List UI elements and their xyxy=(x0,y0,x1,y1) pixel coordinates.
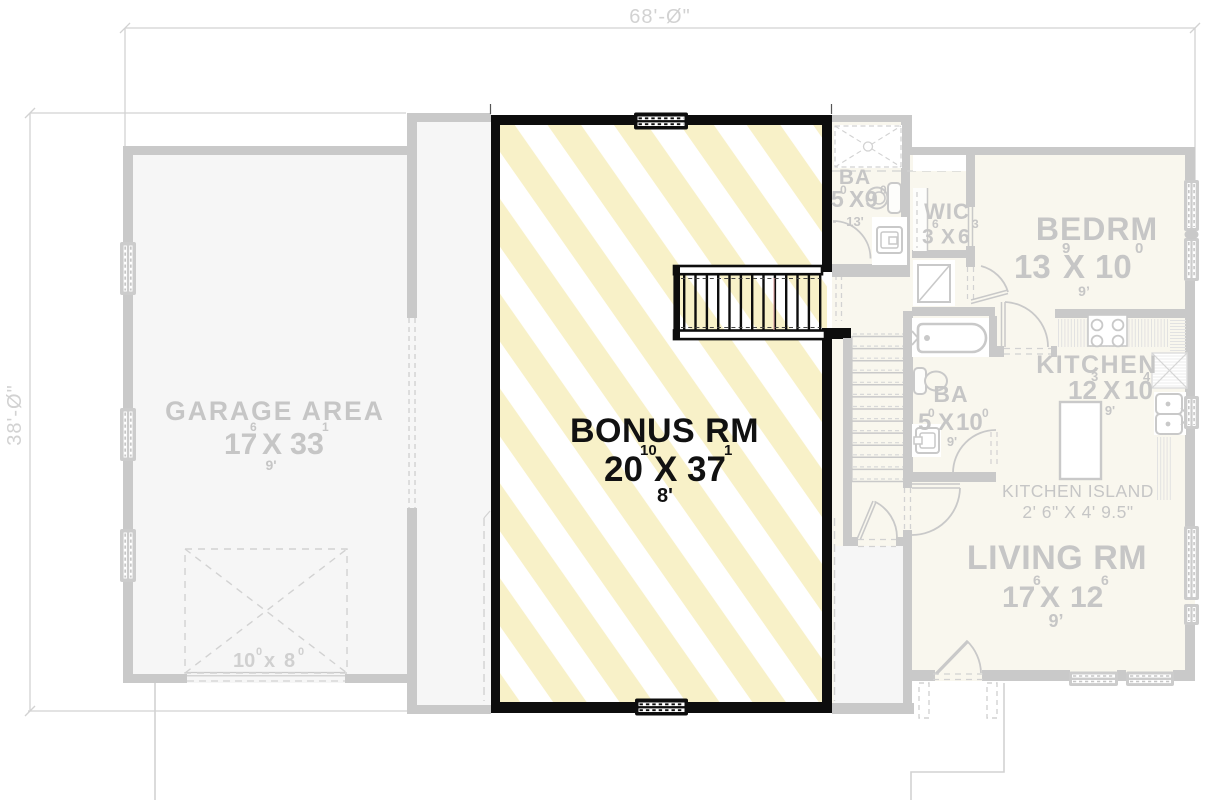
svg-text:KITCHEN ISLAND: KITCHEN ISLAND xyxy=(1002,481,1154,501)
svg-text:10: 10 xyxy=(233,650,255,672)
svg-text:WIC: WIC xyxy=(924,199,970,224)
svg-text:0: 0 xyxy=(840,183,847,197)
svg-text:X: X xyxy=(1063,248,1085,285)
svg-text:17: 17 xyxy=(1002,581,1035,614)
svg-text:LIVING RM: LIVING RM xyxy=(967,539,1147,577)
svg-text:68'-Ø": 68'-Ø" xyxy=(629,6,690,28)
svg-text:10: 10 xyxy=(1095,248,1132,285)
svg-text:9’: 9’ xyxy=(1048,611,1063,631)
svg-text:X: X xyxy=(1103,375,1121,405)
svg-text:8': 8' xyxy=(657,485,673,507)
svg-text:BA: BA xyxy=(933,381,968,407)
svg-text:X: X xyxy=(938,409,954,436)
svg-text:x: x xyxy=(264,650,275,672)
svg-text:3: 3 xyxy=(972,217,979,231)
svg-text:3: 3 xyxy=(1091,369,1098,384)
svg-text:9': 9' xyxy=(1105,403,1115,418)
svg-text:0: 0 xyxy=(928,406,935,420)
svg-text:6: 6 xyxy=(932,217,939,231)
svg-text:X: X xyxy=(1040,581,1060,614)
svg-text:20: 20 xyxy=(604,450,643,489)
svg-text:0: 0 xyxy=(1135,240,1143,257)
svg-text:1: 1 xyxy=(322,420,329,434)
svg-text:0: 0 xyxy=(880,183,887,197)
svg-text:8: 8 xyxy=(284,650,295,672)
svg-text:37: 37 xyxy=(687,450,726,489)
svg-text:33: 33 xyxy=(290,427,324,461)
svg-text:13: 13 xyxy=(1014,248,1051,285)
svg-text:X: X xyxy=(941,226,955,249)
svg-text:4: 4 xyxy=(1143,369,1151,384)
svg-text:9: 9 xyxy=(865,186,878,212)
svg-text:6: 6 xyxy=(1101,572,1109,588)
svg-text:10: 10 xyxy=(956,409,983,436)
svg-text:9': 9' xyxy=(265,457,276,473)
svg-text:9': 9' xyxy=(947,434,957,449)
svg-text:12: 12 xyxy=(1070,581,1103,614)
svg-text:X: X xyxy=(849,186,865,212)
svg-text:0: 0 xyxy=(298,646,304,658)
svg-text:2' 6" X 4' 9.5": 2' 6" X 4' 9.5" xyxy=(1022,502,1133,522)
svg-text:0: 0 xyxy=(256,646,262,658)
svg-text:6: 6 xyxy=(958,226,970,249)
svg-text:13': 13' xyxy=(846,214,864,229)
svg-text:1: 1 xyxy=(724,442,732,459)
svg-text:X: X xyxy=(654,450,678,489)
svg-text:6: 6 xyxy=(250,420,257,434)
svg-text:38'-Ø": 38'-Ø" xyxy=(4,384,26,445)
svg-text:0: 0 xyxy=(982,406,989,420)
svg-text:9’: 9’ xyxy=(1078,283,1090,299)
svg-text:GARAGE AREA: GARAGE AREA xyxy=(165,396,385,426)
